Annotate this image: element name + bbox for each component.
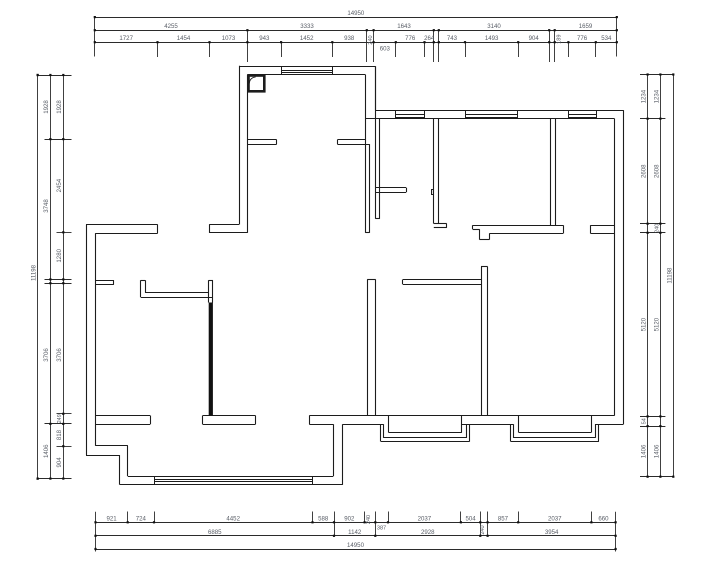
svg-text:504: 504: [466, 515, 477, 522]
svg-text:1928: 1928: [56, 100, 63, 114]
svg-text:2037: 2037: [418, 515, 432, 522]
svg-text:857: 857: [498, 515, 509, 522]
svg-text:3706: 3706: [43, 348, 50, 362]
svg-text:1727: 1727: [119, 35, 133, 42]
svg-text:2608: 2608: [653, 164, 660, 178]
svg-text:1493: 1493: [485, 35, 499, 42]
svg-text:904: 904: [529, 35, 540, 42]
svg-text:660: 660: [598, 515, 609, 522]
svg-text:943: 943: [259, 35, 270, 42]
svg-text:776: 776: [577, 35, 588, 42]
svg-text:14950: 14950: [347, 542, 365, 549]
svg-text:3748: 3748: [43, 199, 50, 213]
svg-text:11198: 11198: [666, 267, 673, 284]
svg-text:387: 387: [377, 526, 386, 532]
svg-text:1406: 1406: [641, 444, 648, 458]
svg-text:240: 240: [480, 525, 486, 534]
svg-text:902: 902: [344, 515, 355, 522]
svg-text:5120: 5120: [641, 317, 648, 331]
svg-text:240: 240: [366, 515, 372, 524]
svg-text:2608: 2608: [641, 164, 648, 178]
svg-text:1452: 1452: [300, 35, 314, 42]
svg-text:5120: 5120: [653, 317, 660, 331]
svg-text:1928: 1928: [43, 100, 50, 114]
svg-text:249: 249: [57, 414, 63, 423]
svg-text:1454: 1454: [177, 35, 191, 42]
svg-text:4452: 4452: [226, 515, 240, 522]
svg-text:921: 921: [107, 515, 118, 522]
svg-text:776: 776: [405, 35, 416, 42]
svg-text:189: 189: [557, 35, 563, 44]
svg-text:3333: 3333: [300, 23, 314, 30]
svg-text:1142: 1142: [348, 529, 362, 536]
svg-text:534: 534: [601, 35, 612, 42]
svg-text:2037: 2037: [548, 515, 562, 522]
svg-text:603: 603: [380, 45, 391, 52]
svg-text:1234: 1234: [653, 89, 660, 103]
svg-text:11198: 11198: [30, 264, 37, 281]
svg-text:1659: 1659: [579, 23, 593, 30]
svg-text:1234: 1234: [641, 89, 648, 103]
svg-text:904: 904: [56, 457, 63, 468]
svg-text:743: 743: [447, 35, 458, 42]
svg-text:3140: 3140: [487, 23, 501, 30]
svg-text:240: 240: [654, 224, 660, 233]
svg-text:4255: 4255: [164, 23, 178, 30]
svg-text:1643: 1643: [397, 23, 411, 30]
svg-text:938: 938: [344, 35, 355, 42]
svg-text:54: 54: [642, 418, 648, 424]
svg-text:2928: 2928: [421, 529, 435, 536]
svg-text:588: 588: [318, 515, 329, 522]
svg-text:1406: 1406: [43, 444, 50, 458]
svg-text:1073: 1073: [222, 35, 236, 42]
svg-text:3706: 3706: [56, 348, 63, 362]
svg-text:14950: 14950: [347, 10, 365, 17]
svg-text:2454: 2454: [56, 178, 63, 192]
svg-text:6885: 6885: [208, 529, 222, 536]
svg-text:1406: 1406: [653, 444, 660, 458]
svg-text:1280: 1280: [56, 248, 63, 262]
svg-text:240: 240: [368, 35, 374, 44]
svg-text:3954: 3954: [545, 529, 559, 536]
svg-text:264: 264: [424, 35, 435, 42]
svg-text:724: 724: [136, 515, 147, 522]
svg-text:818: 818: [56, 429, 63, 440]
